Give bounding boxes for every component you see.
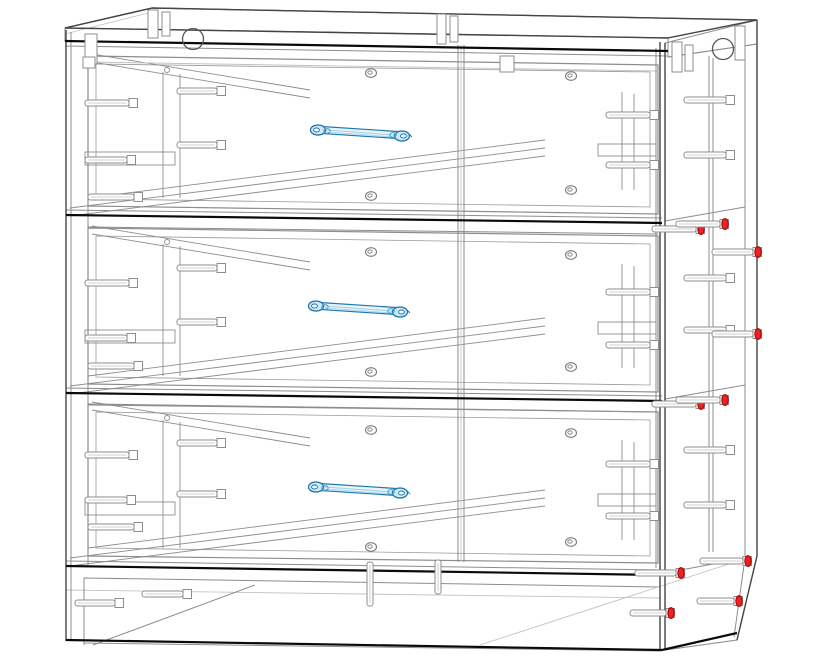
screw-icon — [606, 161, 659, 170]
screw-icon — [177, 141, 226, 150]
screw-icon — [88, 193, 143, 202]
screw-icon — [606, 460, 659, 469]
screw-icon — [606, 111, 659, 120]
screw-icon — [177, 264, 226, 273]
screw-icon — [684, 96, 735, 105]
screw-icon — [177, 439, 226, 448]
cam-lock-icon — [366, 368, 377, 377]
cam-lock-icon — [366, 543, 377, 552]
bracket-icon — [685, 45, 693, 71]
bracket-icon — [735, 26, 745, 60]
screw-icon — [75, 599, 124, 608]
bracket-icon — [450, 16, 458, 42]
bracket-icon — [500, 56, 514, 72]
screw-icon — [177, 87, 226, 96]
cam-lock-icon — [566, 363, 577, 372]
cam-lock-icon — [366, 192, 377, 201]
screw-icon — [177, 490, 226, 499]
screw-red-icon[interactable] — [712, 247, 762, 258]
screw-icon — [85, 156, 136, 165]
screw-icon — [684, 274, 735, 283]
screw-icon — [606, 288, 659, 297]
screw-icon — [85, 334, 136, 343]
bracket-icon — [672, 42, 682, 72]
screw-icon — [606, 512, 659, 521]
screw-icon — [142, 590, 192, 599]
screw-icon — [88, 362, 143, 371]
screw-icon — [684, 151, 735, 160]
screw-icon — [85, 496, 136, 505]
screw-icon — [85, 99, 138, 108]
screw-icon — [177, 318, 226, 327]
screw-icon — [684, 501, 735, 510]
screw-icon — [606, 341, 659, 350]
screw-icon — [88, 523, 143, 532]
bracket-icon — [437, 14, 446, 44]
cam-lock-icon — [566, 72, 577, 81]
cam-lock-icon — [366, 69, 377, 78]
dowel-icon — [367, 562, 373, 606]
cad-canvas — [0, 0, 824, 658]
cam-lock-icon — [366, 248, 377, 257]
bracket-icon — [148, 10, 158, 38]
screw-red-icon[interactable] — [630, 608, 675, 619]
bracket-icon — [83, 57, 95, 68]
screw-red-icon[interactable] — [697, 596, 743, 607]
drawer-3[interactable] — [70, 402, 658, 566]
cam-lock-icon — [566, 538, 577, 547]
screw-icon — [85, 279, 138, 288]
dowel-icon — [435, 560, 441, 594]
cam-lock-icon — [566, 429, 577, 438]
screw-icon — [684, 446, 735, 455]
screw-icon — [85, 451, 138, 460]
cam-lock-icon — [566, 186, 577, 195]
bracket-icon — [162, 12, 170, 36]
cam-lock-icon — [566, 251, 577, 260]
cam-lock-icon — [366, 426, 377, 435]
cad-viewport — [0, 0, 824, 658]
